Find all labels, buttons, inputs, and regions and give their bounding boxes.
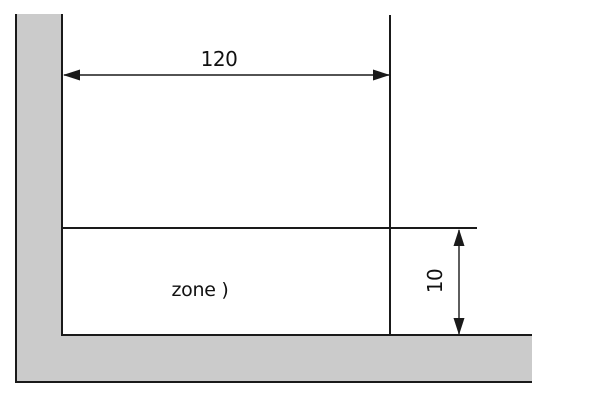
dimension-height-arrow-top-icon: [454, 229, 465, 246]
drawing-canvas: 120 10 zone ): [0, 0, 600, 400]
dimension-width-arrow-right-icon: [373, 70, 390, 81]
dimension-width-arrow-left-icon: [63, 70, 80, 81]
dimension-height: 10: [423, 229, 465, 335]
dimension-height-label: 10: [423, 269, 447, 293]
wall-inner-border: [62, 14, 532, 335]
technical-drawing: 120 10 zone ): [0, 0, 600, 400]
wall-outer-border: [16, 14, 532, 382]
dimension-width-label: 120: [201, 47, 238, 71]
dimension-height-arrow-bottom-icon: [454, 318, 465, 335]
wall-l-shape: [15, 14, 532, 383]
zone-label: zone ): [172, 279, 229, 301]
dimension-width: 120: [63, 47, 390, 81]
